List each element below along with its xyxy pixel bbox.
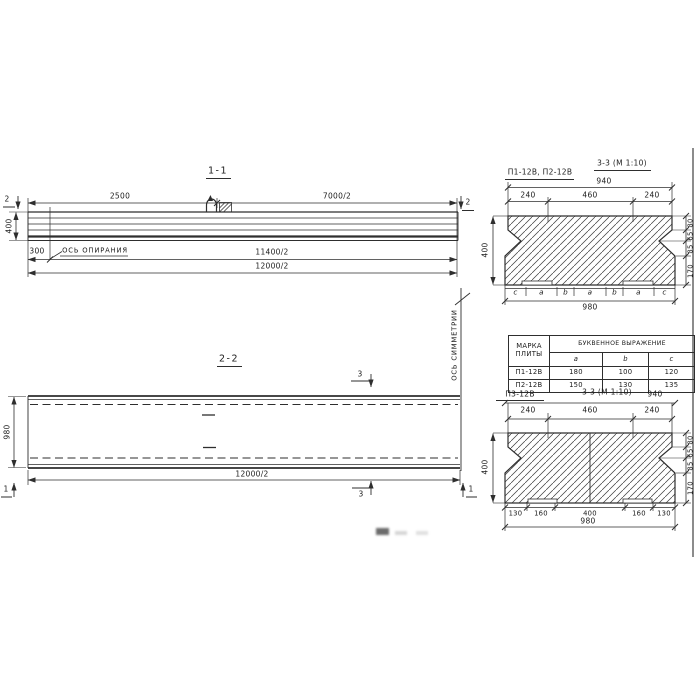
table-col-b: b <box>603 353 649 367</box>
dim-label-170-bottom: 170 <box>688 481 695 495</box>
dim-label-12000-2-elev: 12000/2 <box>255 262 288 270</box>
section-1-1-title: 1-1 <box>208 166 228 176</box>
dim-label-940-bottom: 940 <box>647 390 662 398</box>
table-row: П1-12В 180 100 120 <box>509 367 695 380</box>
dim-label-460-b: 460 <box>582 406 597 414</box>
table-cell-b: 100 <box>603 367 649 380</box>
table-header-mark: МАРКА ПЛИТЫ <box>509 336 550 367</box>
letter-a-1: a <box>539 288 544 295</box>
dim-label-11400-2: 11400/2 <box>255 248 288 256</box>
dim-label-7000-2: 7000/2 <box>323 192 351 200</box>
letter-c-2: c <box>662 288 666 295</box>
letter-b-2: b <box>612 288 617 295</box>
cut-mark-2-right: 2 <box>465 198 470 206</box>
cut-mark-1-right: 1 <box>468 485 473 493</box>
dim-label-160-b: 160 <box>632 511 646 518</box>
plate-marks-table: МАРКА ПЛИТЫ БУКВЕННОЕ ВЫРАЖЕНИЕ a b c П1… <box>508 335 695 393</box>
technical-drawing-canvas: 1-1 2500 7000/2 2 2 400 300 ОСЬ ОПИРАНИЯ… <box>0 0 700 700</box>
table-cell-mark: П1-12В <box>509 367 550 380</box>
dim-label-460-a: 460 <box>582 191 597 199</box>
dim-label-130-b: 130 <box>657 511 671 518</box>
dim-label-400-sect-top: 400 <box>481 242 489 257</box>
dim-label-12000-2-plan: 12000/2 <box>235 470 268 478</box>
letter-a-2: a <box>588 288 593 295</box>
dim-label-80-bottom: 80 <box>688 435 695 444</box>
letter-b-1: b <box>563 288 568 295</box>
letter-c-1: c <box>513 288 517 295</box>
section-1-1-linework <box>3 179 474 278</box>
section-3-3-bottom-title: 3-3 (М 1:10) <box>582 388 632 396</box>
dim-label-160-a: 160 <box>534 511 548 518</box>
dim-label-85-bottom: 85 <box>688 461 695 470</box>
cut-mark-3-top: 3 <box>357 370 362 378</box>
dim-label-80-top: 80 <box>688 218 695 227</box>
scan-smudge <box>416 531 428 535</box>
table-header-expression: БУКВЕННОЕ ВЫРАЖЕНИЕ <box>550 336 695 353</box>
dim-label-240-a: 240 <box>520 191 535 199</box>
dim-label-400-elev: 400 <box>5 218 13 233</box>
symmetry-axis-label: ОСЬ СИММЕТРИИ <box>452 309 459 381</box>
dim-label-240-c: 240 <box>520 406 535 414</box>
plate-marks-top-label: П1-12В, П2-12В <box>508 168 573 176</box>
cut-mark-2-left: 2 <box>4 195 9 203</box>
cut-mark-1-left: 1 <box>3 485 8 493</box>
dim-label-240-b: 240 <box>644 191 659 199</box>
section-2-2-title: 2-2 <box>219 354 239 364</box>
table-col-a: a <box>550 353 603 367</box>
scan-smudge <box>395 531 407 535</box>
support-axis-label: ОСЬ ОПИРАНИЯ <box>62 248 128 255</box>
table-cell-c: 120 <box>649 367 695 380</box>
section-2-2-linework <box>1 288 477 497</box>
dim-label-980-sect-bottom: 980 <box>580 517 595 525</box>
dim-label-170-top: 170 <box>688 264 695 278</box>
section-3-3-top-title: 3-3 (М 1:10) <box>597 159 647 167</box>
plate-mark-p3-label: П3-12В <box>505 390 535 398</box>
dim-label-65-top: 65 <box>688 231 695 240</box>
dim-label-85-top: 85 <box>688 244 695 253</box>
dim-label-980-sect-top: 980 <box>582 303 597 311</box>
dim-label-65-bottom: 65 <box>688 448 695 457</box>
table-cell-a: 180 <box>550 367 603 380</box>
dim-label-130-a: 130 <box>509 511 523 518</box>
dim-label-980-plan: 980 <box>3 424 11 439</box>
dim-label-300: 300 <box>29 247 44 255</box>
dim-label-240-d: 240 <box>644 406 659 414</box>
table-col-c: c <box>649 353 695 367</box>
letter-a-3: a <box>636 288 641 295</box>
dim-label-2500: 2500 <box>110 192 130 200</box>
dim-label-940-top: 940 <box>596 177 611 185</box>
cut-mark-3-bottom: 3 <box>358 490 363 498</box>
scan-smudge <box>376 528 389 535</box>
dim-label-400-sect-bottom: 400 <box>481 459 489 474</box>
